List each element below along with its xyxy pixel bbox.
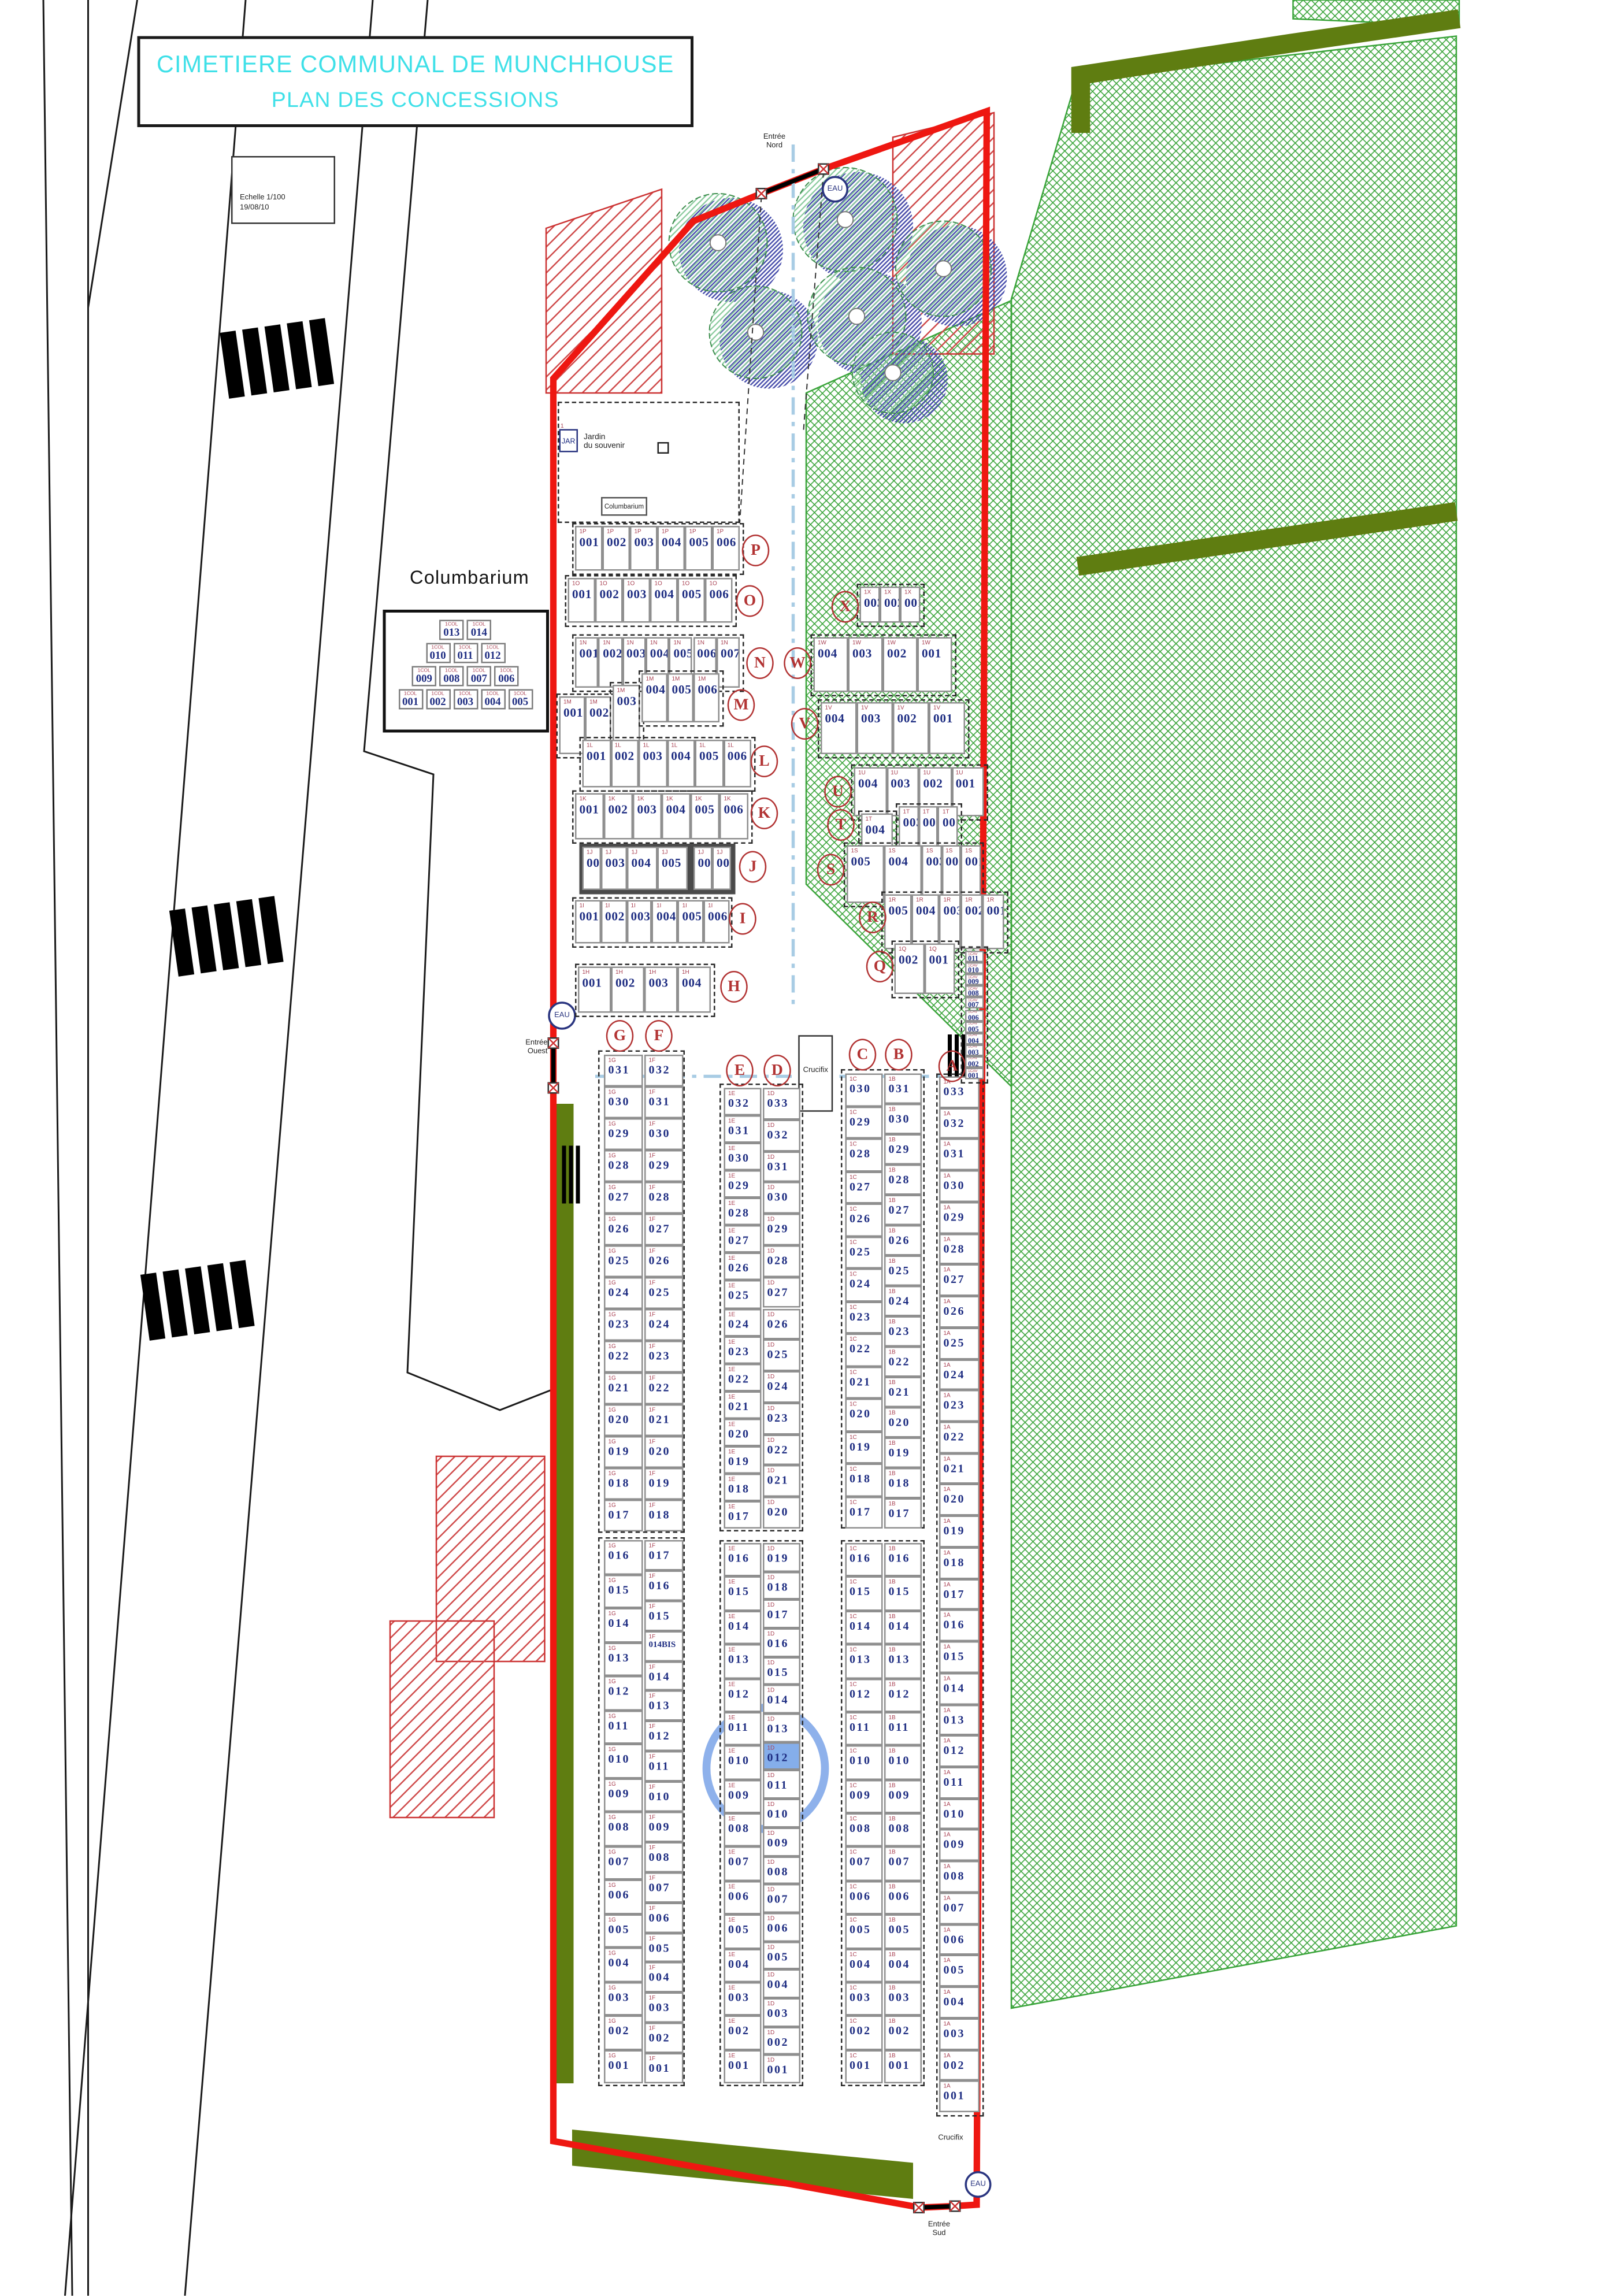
plot-cell-COL004: 1COL004 [480,689,505,710]
plot-cell-C020: 1C020 [845,1399,883,1431]
plot-prefix: 1F [649,1058,656,1063]
plot-number: 025 [889,1266,911,1277]
plot-number: 005 [968,1026,979,1032]
plot-cell-D010: 1D010 [763,1799,800,1827]
plot-number: 027 [609,1192,630,1204]
plot-cell-O001: 1O001 [568,578,596,623]
plot-number: 023 [850,1311,871,1323]
plot-number: 007 [468,674,490,685]
plot-prefix: 1V [825,705,832,711]
plot-cell-B009: 1B009 [884,1779,922,1813]
plot-cell-B024: 1B024 [884,1286,922,1316]
plot-prefix: 1D [767,1216,775,1222]
plot-prefix: 1C [850,1681,857,1687]
plot-number: 011 [968,956,978,962]
plot-cell-COL006: 1COL006 [494,666,519,687]
plot-number: 001 [580,536,599,548]
plot-cell-R001: 1R001 [982,895,1004,949]
plot-prefix: 1G [609,1089,616,1095]
plot-number: 024 [609,1288,630,1299]
plot-cell-B015: 1B015 [884,1577,922,1610]
plot-prefix: 1B [889,1501,896,1507]
plot-prefix: 1C [850,1109,857,1115]
plot-number: 016 [944,1620,966,1631]
plot-number: 002 [607,536,626,548]
plot-cell-B023: 1B023 [884,1316,922,1347]
plot-number: 004 [655,588,674,600]
plot-cell-D006: 1D006 [763,1913,800,1941]
plot-cell-A007: 1A007 [939,1893,980,1924]
plot-cell-C018: 1C018 [845,1464,883,1496]
plot-cell-D016: 1D016 [763,1629,800,1657]
plot-number: 003 [944,2028,966,2040]
plot-cell-F006: 1F006 [644,1902,684,1933]
crucifix-label-centre: Crucifix [799,1066,833,1075]
plot-prefix: 1O [655,581,662,587]
plot-cell-010: 1CAV010 [965,962,984,974]
plot-number: 001 [767,2065,789,2076]
plot-cell-F022: 1F022 [644,1373,684,1404]
plot-cell-B011: 1B011 [884,1712,922,1745]
plot-cell-A006: 1A006 [939,1924,980,1955]
plot-prefix: 1X [904,589,911,595]
plot-number: 002 [945,855,960,867]
plot-cell-C017: 1C017 [845,1496,883,1529]
plot-cell-B010: 1B010 [884,1746,922,1779]
plot-prefix: 1B [889,1289,896,1294]
plot-number: 027 [649,1224,671,1236]
plot-prefix: 1A [944,1864,951,1870]
plot-number: 032 [649,1065,671,1077]
plot-prefix: 1D [767,1405,775,1411]
plot-cell-P004: 1P004 [658,526,685,571]
plot-cell-Q001: 1Q001 [925,944,955,995]
plot-number: 011 [850,1722,870,1734]
plot-prefix: 1F [649,2026,656,2032]
plot-number: 003 [767,2008,789,2020]
plot-prefix: 1G [609,1781,616,1786]
plot-number: 005 [695,803,715,815]
plot-number: 002 [609,2026,630,2037]
plot-cell-A027: 1A027 [939,1264,980,1296]
plot-cell-G019: 1G019 [604,1436,643,1468]
plot-number: 021 [944,1463,966,1475]
plot-number: 022 [850,1344,871,1355]
plot-number: 005 [889,904,908,917]
plot-number: 008 [609,1822,630,1834]
plot-prefix: 1A [944,1393,951,1399]
plot-prefix: 1B [889,1167,896,1173]
plot-prefix: 1F [649,1694,656,1700]
plot-cell-G018: 1G018 [604,1468,643,1500]
plot-number: 018 [609,1478,630,1490]
plot-number: 029 [850,1116,871,1127]
row-letter-M: M [728,689,755,721]
plot-number: 009 [609,1788,630,1800]
plot-number: 014 [468,628,490,639]
plan-linework [0,0,1621,2296]
plot-prefix: 1C [850,1951,857,1957]
plot-cell-F021: 1F021 [644,1404,684,1436]
plot-prefix: 1J [587,850,593,855]
plot-prefix: 1D [767,1279,775,1285]
plot-prefix: 1A [944,1958,951,1964]
plot-number: 015 [649,1611,671,1622]
plot-cell-G022: 1G022 [604,1341,643,1373]
plot-cell-D033: 1D033 [763,1088,800,1119]
plot-cell-F005: 1F005 [644,1933,684,1963]
plot-number: 001 [563,707,583,719]
plot-prefix: 1A [944,2052,951,2058]
plot-number: 002 [887,647,907,659]
plot-number: 013 [944,1714,966,1726]
plot-cell-C007: 1C007 [845,1847,883,1880]
plot-prefix: 1B [889,1681,896,1687]
plot-number: 005 [509,697,531,708]
plot-prefix: 1D [767,1830,775,1836]
plot-cell-K005: 1K005 [691,793,719,840]
plot-prefix: 1E [728,1229,735,1234]
plot-cell-E010: 1E010 [724,1746,762,1779]
plot-cell-D008: 1D008 [763,1856,800,1884]
plot-prefix: 1F [649,1407,656,1413]
plot-number: 019 [649,1478,671,1490]
plot-number: 014 [767,1696,789,1707]
plot-prefix: 1K [666,796,673,802]
scale-box: Echelle 1/100 19/08/10 [231,156,335,224]
plot-number: 010 [609,1754,630,1765]
plot-prefix: 1A [944,1236,951,1242]
plot-number: 024 [944,1369,966,1381]
plot-cell-A008: 1A008 [939,1861,980,1892]
plot-prefix: 1A [944,1833,951,1838]
plot-prefix: 1D [767,1374,775,1380]
plot-prefix: 1C [850,1369,857,1375]
plot-number: 006 [724,803,744,815]
plot-cell-COL007: 1COL007 [467,666,492,687]
plot-prefix: 1I [656,903,661,909]
plot-prefix: 1D [767,1688,775,1694]
plot-number: 026 [944,1306,966,1318]
plot-prefix: 1G [609,1916,616,1922]
plot-prefix: 1F [649,1471,656,1477]
plot-prefix: 1I [708,903,713,909]
plot-number: 032 [944,1118,966,1129]
plot-number: 011 [944,1777,965,1789]
plot-cell-I006: 1I006 [704,900,729,944]
plot-number: 021 [609,1383,630,1394]
plot-prefix: 1S [945,848,952,854]
plot-cell-G013: 1G013 [604,1642,643,1676]
plot-cell-D022: 1D022 [763,1434,800,1466]
plot-prefix: 1C [850,1207,857,1212]
plot-cell-M004: 1M004 [641,673,667,722]
plot-prefix: 1D [767,1546,775,1552]
plot-cell-F019: 1F019 [644,1468,684,1500]
plot-cell-COL014: 1COL014 [467,620,492,640]
plot-number: 021 [728,1401,750,1412]
plot-number: 006 [968,1015,979,1021]
plot-number: 005 [682,910,702,922]
plot-prefix: 1A [944,1644,951,1650]
plot-cell-D005: 1D005 [763,1941,800,1969]
plot-cell-G028: 1G028 [604,1150,643,1182]
plot-number: 007 [767,1894,789,1906]
plot-number: 026 [850,1214,871,1225]
plot-cell-W004: 1W004 [814,637,848,692]
plot-cell-M003: 1M003 [613,685,640,743]
plot-prefix: 1B [889,1228,896,1234]
plot-prefix: 1C [850,2053,857,2058]
plot-cell-A032: 1A032 [939,1108,980,1139]
plot-cell-M006: 1M006 [693,673,719,722]
plot-prefix: 1D [767,1091,775,1097]
plot-number: 007 [609,1856,630,1867]
plot-number: 002 [850,2026,871,2038]
row-letter-V: V [791,708,819,740]
plot-cell-C005: 1C005 [845,1915,883,1948]
plot-cell-A003: 1A003 [939,2018,980,2049]
plot-number: 001 [944,2091,966,2102]
plot-cell-B014: 1B014 [884,1611,922,1644]
plot-number: 001 [933,713,953,725]
plot-prefix: 1D [767,1745,775,1750]
plot-cell-006: 1CAV006 [965,1009,984,1021]
columbarium-inset-title: Columbarium [390,566,549,588]
plot-cell-C029: 1C029 [845,1106,883,1138]
plot-cell-C024: 1C024 [845,1268,883,1301]
plot-cell-G024: 1G024 [604,1277,643,1309]
plot-prefix: 1E [728,1504,735,1509]
plot-prefix: 1F [649,1875,656,1880]
plot-cell-H002: 1H002 [611,967,645,1013]
plot-prefix: 1W [922,640,930,646]
plot-number: 008 [944,1871,966,1883]
plot-prefix: 1C [850,1985,857,1991]
plot-cell-A022: 1A022 [939,1422,980,1453]
plot-cell-009: 1CAV009 [965,974,984,985]
plot-prefix: 1B [889,1546,896,1552]
plot-number: 009 [850,1790,871,1801]
plot-prefix: 1B [889,1715,896,1720]
plot-prefix: 1I [630,903,635,909]
plot-number: 014 [850,1620,871,1632]
plot-prefix: 1U [956,770,963,776]
plot-cell-H001: 1H001 [578,967,611,1013]
plot-cell-D025: 1D025 [763,1340,800,1371]
plot-prefix: 1F [649,1280,656,1286]
plot-prefix: 1C [850,1613,857,1619]
plot-number: 018 [728,1483,750,1495]
plot-cell-F012: 1F012 [644,1721,684,1751]
plot-cell-X002: 1X002 [880,587,900,623]
plot-cell-COL012: 1COL012 [480,643,505,663]
plot-cell-G002: 1G002 [604,2016,643,2050]
plot-number: 030 [728,1153,750,1164]
plot-prefix: 1C [850,1749,857,1755]
plot-number: 008 [968,992,979,997]
plot-number: 004 [858,777,878,789]
plot-number: 007 [721,647,740,659]
plot-prefix: 1G [609,1280,616,1286]
plot-cell-A026: 1A026 [939,1296,980,1327]
plot-cell-G001: 1G001 [604,2049,643,2083]
plot-number: 001 [850,2060,871,2071]
plot-cell-F025: 1F025 [644,1277,684,1309]
plot-cell-005: 1CAV005 [965,1021,984,1032]
plot-number: 019 [609,1446,630,1458]
plot-cell-F007: 1F007 [644,1872,684,1902]
row-letter-W: W [784,647,811,679]
plot-cell-C006: 1C006 [845,1880,883,1914]
plot-prefix: 1X [884,589,891,595]
plot-prefix: 1A [944,1267,951,1273]
plot-cell-COL010: 1COL010 [425,643,450,663]
plot-number: 003 [637,803,657,815]
plot-number: 031 [728,1126,750,1137]
plot-cell-D002: 1D002 [763,2027,800,2055]
plot-cell-K006: 1K006 [719,793,748,840]
plot-number: 002 [603,647,622,659]
plot-prefix: 1F [649,1153,656,1159]
plot-prefix: 1G [609,1471,616,1477]
row-letter-F: F [645,1020,673,1052]
plot-number: 001 [929,954,949,966]
row-letter-I: I [729,903,756,935]
plot-cell-F023: 1F023 [644,1341,684,1373]
plot-prefix: 1V [897,705,904,711]
plot-number: 004 [482,697,504,708]
plot-number: 029 [944,1212,966,1223]
plot-cell-COL005: 1COL005 [508,689,533,710]
plot-prefix: 1O [600,581,607,587]
plot-cell-S005: 1S005 [847,845,884,903]
plot-number: 023 [728,1346,750,1357]
plot-cell-F009: 1F009 [644,1812,684,1842]
plot-prefix: 1R [944,897,951,903]
plot-number: 010 [427,651,449,662]
row-letter-X: X [832,591,859,623]
plot-number: 024 [728,1318,750,1330]
plot-number: 012 [728,1688,750,1700]
plot-prefix: 1E [728,1118,735,1124]
plot-number: 029 [609,1129,630,1140]
plot-cell-D018: 1D018 [763,1571,800,1600]
plot-cell-E005: 1E005 [724,1915,762,1948]
plot-number: 020 [850,1409,871,1420]
plot-number: 005 [673,647,692,659]
plot-prefix: 1D [767,2030,775,2035]
entree-ouest-label: EntréeOuest [499,1040,548,1058]
plot-prefix: 1E [728,1749,735,1755]
plot-number: 004 [609,1958,630,1969]
plot-prefix: 1N [650,640,658,646]
plot-number: 005 [689,536,709,548]
plot-prefix: 1F [649,1573,656,1579]
plot-number: 010 [968,968,979,974]
plot-number: 003 [891,777,910,789]
plot-prefix: 1N [603,640,610,646]
plot-number: 020 [609,1415,630,1426]
plot-cell-C010: 1C010 [845,1746,883,1779]
plot-prefix: 1F [649,1935,656,1941]
plot-number: 001 [609,2060,630,2071]
plot-number: 001 [965,855,980,867]
plot-number: 020 [728,1429,750,1440]
plot-number: 002 [944,2060,966,2071]
plot-prefix: 1R [889,897,896,903]
plot-prefix: 1G [609,1679,616,1685]
plot-prefix: 1N [721,640,728,646]
plot-prefix: 1G [609,2052,616,2058]
plot-number: 019 [767,1553,789,1565]
plot-number: 013 [609,1652,630,1664]
plot-cell-C012: 1C012 [845,1678,883,1712]
plot-cell-D003: 1D003 [763,1998,800,2026]
plot-number: 004 [671,750,691,762]
plot-number: 009 [968,980,979,985]
plot-prefix: 1F [649,1375,656,1381]
plot-number: 007 [968,1003,979,1009]
plot-number: 004 [818,647,837,659]
plot-number: 002 [615,977,635,989]
plot-cell-L002: 1L002 [610,740,639,788]
plot-cell-G029: 1G029 [604,1118,643,1150]
plot-number: 002 [427,697,449,708]
plot-prefix: 1B [889,1471,896,1477]
plot-number: 016 [728,1553,750,1565]
plot-cell-X001: 1X001 [900,587,921,623]
plot-number: 012 [649,1731,671,1743]
plot-cell-A005: 1A005 [939,1955,980,1986]
plot-prefix: 1D [767,1802,775,1808]
plot-number: 013 [889,1655,911,1666]
plot-prefix: 1F [649,1815,656,1820]
plot-prefix: 1A [944,1770,951,1776]
plot-cell-A025: 1A025 [939,1327,980,1359]
plot-cell-A014: 1A014 [939,1673,980,1704]
plot-prefix: 1A [944,1927,951,1933]
plot-prefix: 1N [697,640,704,646]
plot-number: 005 [682,588,702,600]
plot-cell-008: 1CAV008 [965,986,984,997]
hedge-south [572,2130,913,2199]
plot-number: 009 [649,1822,671,1834]
plot-prefix: 1T [866,817,873,822]
plot-number: 006 [944,1934,966,1946]
plot-number: 026 [767,1318,789,1330]
plot-number: 026 [649,1256,671,1267]
plot-cell-G007: 1G007 [604,1846,643,1880]
plot-prefix: 1L [615,743,621,748]
plot-prefix: 1E [728,1579,735,1585]
plot-cell-B030: 1B030 [884,1104,922,1134]
plot-cell-B028: 1B028 [884,1164,922,1195]
row-letter-C: C [849,1039,877,1071]
plot-number: 019 [728,1456,750,1468]
plot-cell-E030: 1E030 [724,1143,762,1171]
plot-number: 026 [728,1263,750,1275]
plot-cell-G012: 1G012 [604,1676,643,1710]
plot-number: 031 [649,1097,671,1108]
plot-number: 017 [889,1508,911,1520]
plot-cell-G023: 1G023 [604,1309,643,1341]
plot-number: 015 [767,1667,789,1678]
plot-prefix: 1B [889,1883,896,1889]
plot-number: 019 [889,1448,911,1459]
plot-cell-G027: 1G027 [604,1182,643,1214]
plot-number: 007 [850,1857,871,1868]
